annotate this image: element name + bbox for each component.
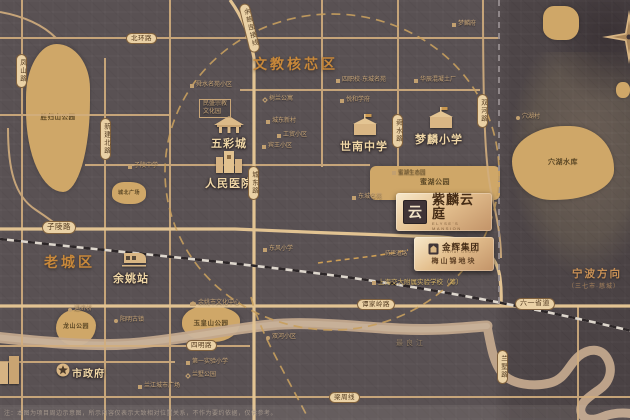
xuehu-village-marker-icon	[516, 116, 520, 120]
yuehe-estate-marker-icon	[340, 99, 344, 103]
road-pill-ziling-road: 子陵路	[42, 221, 76, 234]
zone-old-town-title: 老城区	[44, 252, 95, 272]
shinan-middle-school: 世南中学	[340, 138, 388, 154]
kindergarten: 舜水名苑小区	[190, 82, 232, 90]
religion-culture-park-text: 民盛宗教 文化园	[203, 101, 227, 116]
peoples-hospital-icon	[215, 148, 243, 174]
road-pill-lanshu-road: 兰墅路	[497, 350, 508, 384]
culture-center-marker-icon	[190, 301, 196, 306]
road-pill-shuanghe-road: 双河路	[477, 94, 488, 128]
compass-icon	[602, 10, 630, 64]
first-exp-school-marker-icon	[186, 361, 190, 365]
direction-ningbo-label: 宁波方向	[572, 266, 622, 281]
chengdong-village-marker-icon	[266, 120, 270, 124]
road-pill-liangzhou-line: 梁周线	[329, 392, 360, 403]
dongcheng-estate-text: 东城名苑	[358, 194, 382, 202]
dongfeng-school-marker-icon	[263, 248, 267, 252]
jiaotong-school: 上海交大附属实验学校（筹）	[372, 279, 463, 287]
road-pill-chengdong-road: 城东路	[248, 166, 259, 200]
xuehu-village: 穴湖村	[516, 114, 540, 122]
lanshu-park: 兰墅公园	[186, 372, 216, 380]
menglin-mansion: 梦麟府	[452, 21, 476, 29]
dongfeng-school: 东风小学	[263, 246, 293, 254]
lanshu-park-text: 兰墅公园	[192, 372, 216, 380]
concrete-plant-marker-icon	[414, 79, 418, 83]
lanjiang-plaza-text: 兰江城市广场	[144, 383, 180, 391]
direction-ningbo-sub: （三七市·慈城）	[568, 281, 620, 290]
project-name-en: ELYSE'S MANSION	[432, 221, 485, 231]
road-pill-fengshan-road: 凤山路	[16, 54, 27, 88]
shuanghe-village-marker-icon	[266, 336, 270, 340]
plot-name: 梅山锦地块	[432, 256, 477, 266]
city-hall: 市政府	[72, 365, 105, 380]
road-pill-liuyi-highway: 六一省道	[515, 298, 555, 310]
jiaotong-school-text: 上海交大附属实验学校（筹）	[378, 279, 463, 287]
road-pill-xinjian-north-road: 新建北路	[100, 118, 111, 160]
religion-culture-park: 民盛宗教 文化园	[199, 99, 231, 118]
zuiliang-river: 最良江	[396, 340, 426, 349]
developer-badge: 金辉集团 JINHUI GROUP 梅山锦地块	[414, 237, 494, 271]
yuyao-station: 余姚站	[113, 270, 149, 286]
road-pill-siming-road: 四明路	[186, 340, 217, 351]
zhiling-school: 子陵中学	[128, 163, 158, 171]
kindergarten-marker-icon	[190, 84, 194, 88]
mihu-eco-marker-icon	[392, 171, 396, 175]
mihu-eco-text: 蜜湖生态园	[398, 170, 426, 177]
menglin-mansion-marker-icon	[452, 23, 456, 27]
concrete-plant: 华辰混凝土厂	[414, 77, 456, 85]
chengdong-village: 城东新村	[266, 118, 296, 126]
planned-road: 待建道路	[385, 251, 407, 258]
riverside-buildings-icon	[0, 356, 20, 384]
shinan-middle-school-icon	[352, 114, 378, 136]
dongfeng-school-text: 东风小学	[269, 246, 293, 254]
chengdong-village-text: 城东新村	[272, 118, 296, 126]
developer-logo-icon	[428, 243, 439, 255]
shulan-apartment-text: 树兰公寓	[269, 96, 293, 104]
developer-name-en: JINHUI GROUP	[442, 251, 480, 255]
zhiling-school-text: 子陵中学	[134, 163, 158, 171]
binwang-village-marker-icon	[262, 145, 266, 149]
jiaotong-school-marker-icon	[372, 281, 376, 285]
vocational-school-marker-icon	[336, 79, 340, 83]
xuehu-village-text: 穴湖村	[522, 114, 540, 122]
concrete-plant-text: 华辰混凝土厂	[420, 77, 456, 85]
yuyao-station-icon	[120, 252, 148, 268]
map-canvas: 胜归山公园城北广场龙山公园玉皇山公园蜜湖公园穴湖水库	[0, 0, 630, 420]
zuiliang-river-text: 最良江	[396, 340, 426, 349]
vocational-school: 四职校·东城名苑	[336, 77, 386, 85]
yuehe-estate: 悦和学府	[340, 97, 370, 105]
binwang-village-text: 宾王小区	[268, 143, 292, 151]
shulan-apartment-marker-icon	[262, 97, 268, 103]
menglin-primary-school-icon	[428, 107, 454, 129]
lanshu-park-marker-icon	[185, 373, 191, 379]
gongmao-village: 工贸小区	[277, 132, 307, 140]
shuanghe-village-text: 双河小区	[272, 334, 296, 342]
gongmao-village-marker-icon	[277, 134, 281, 138]
dongcheng-estate: 东城名苑	[352, 194, 382, 202]
lanjiang-plaza-marker-icon	[138, 385, 142, 389]
zone-edu-core-title: 文教核芯区	[253, 54, 338, 74]
road-pill-tanjialing-road: 谭家岭路	[357, 299, 395, 310]
yangming-old-town: 阳明古镇	[114, 317, 144, 325]
map-disclaimer: 注：本图为项目周边示意图，所示内容仅表示大致相对位置关系，不作为要约依据，仅供参…	[4, 408, 277, 417]
menglin-primary-school: 梦麟小学	[415, 131, 463, 147]
binwang-village: 宾王小区	[262, 143, 292, 151]
shuanghe-village: 双河小区	[266, 334, 296, 342]
zhiling-school-marker-icon	[128, 165, 132, 169]
road-pill-beihuan-road: 北环路	[126, 33, 157, 44]
gongmao-village-text: 工贸小区	[283, 132, 307, 140]
project-badge: 云 紫麟云庭 ELYSE'S MANSION	[396, 193, 492, 231]
yangming-old-town-marker-icon	[114, 319, 118, 323]
tongji-bridge-text: 通济桥	[74, 306, 92, 314]
peoples-hospital: 人民医院	[205, 175, 253, 191]
lanjiang-plaza: 兰江城市广场	[138, 383, 180, 391]
first-exp-school: 第一实验小学	[186, 359, 228, 367]
city-hall-icon	[56, 363, 70, 377]
tongji-bridge-marker-icon	[68, 308, 72, 312]
first-exp-school-text: 第一实验小学	[192, 359, 228, 367]
culture-center-text: 余姚市文化中心	[198, 300, 240, 308]
mihu-eco: 蜜湖生态园	[392, 170, 426, 177]
project-name: 紫麟云庭	[432, 193, 485, 220]
project-logo-icon: 云	[403, 200, 427, 224]
dongcheng-estate-marker-icon	[352, 196, 356, 200]
tongji-bridge: 通济桥	[68, 306, 92, 314]
vocational-school-text: 四职校·东城名苑	[342, 77, 386, 85]
kindergarten-text: 舜水名苑小区	[196, 82, 232, 90]
shulan-apartment: 树兰公寓	[263, 96, 293, 104]
road-pill-shunshui-road: 舜水路	[392, 114, 403, 148]
planned-road-text: 待建道路	[385, 251, 407, 258]
yangming-old-town-text: 阳明古镇	[120, 317, 144, 325]
menglin-mansion-text: 梦麟府	[458, 21, 476, 29]
yuehe-estate-text: 悦和学府	[346, 97, 370, 105]
culture-center: 余姚市文化中心	[190, 300, 240, 308]
